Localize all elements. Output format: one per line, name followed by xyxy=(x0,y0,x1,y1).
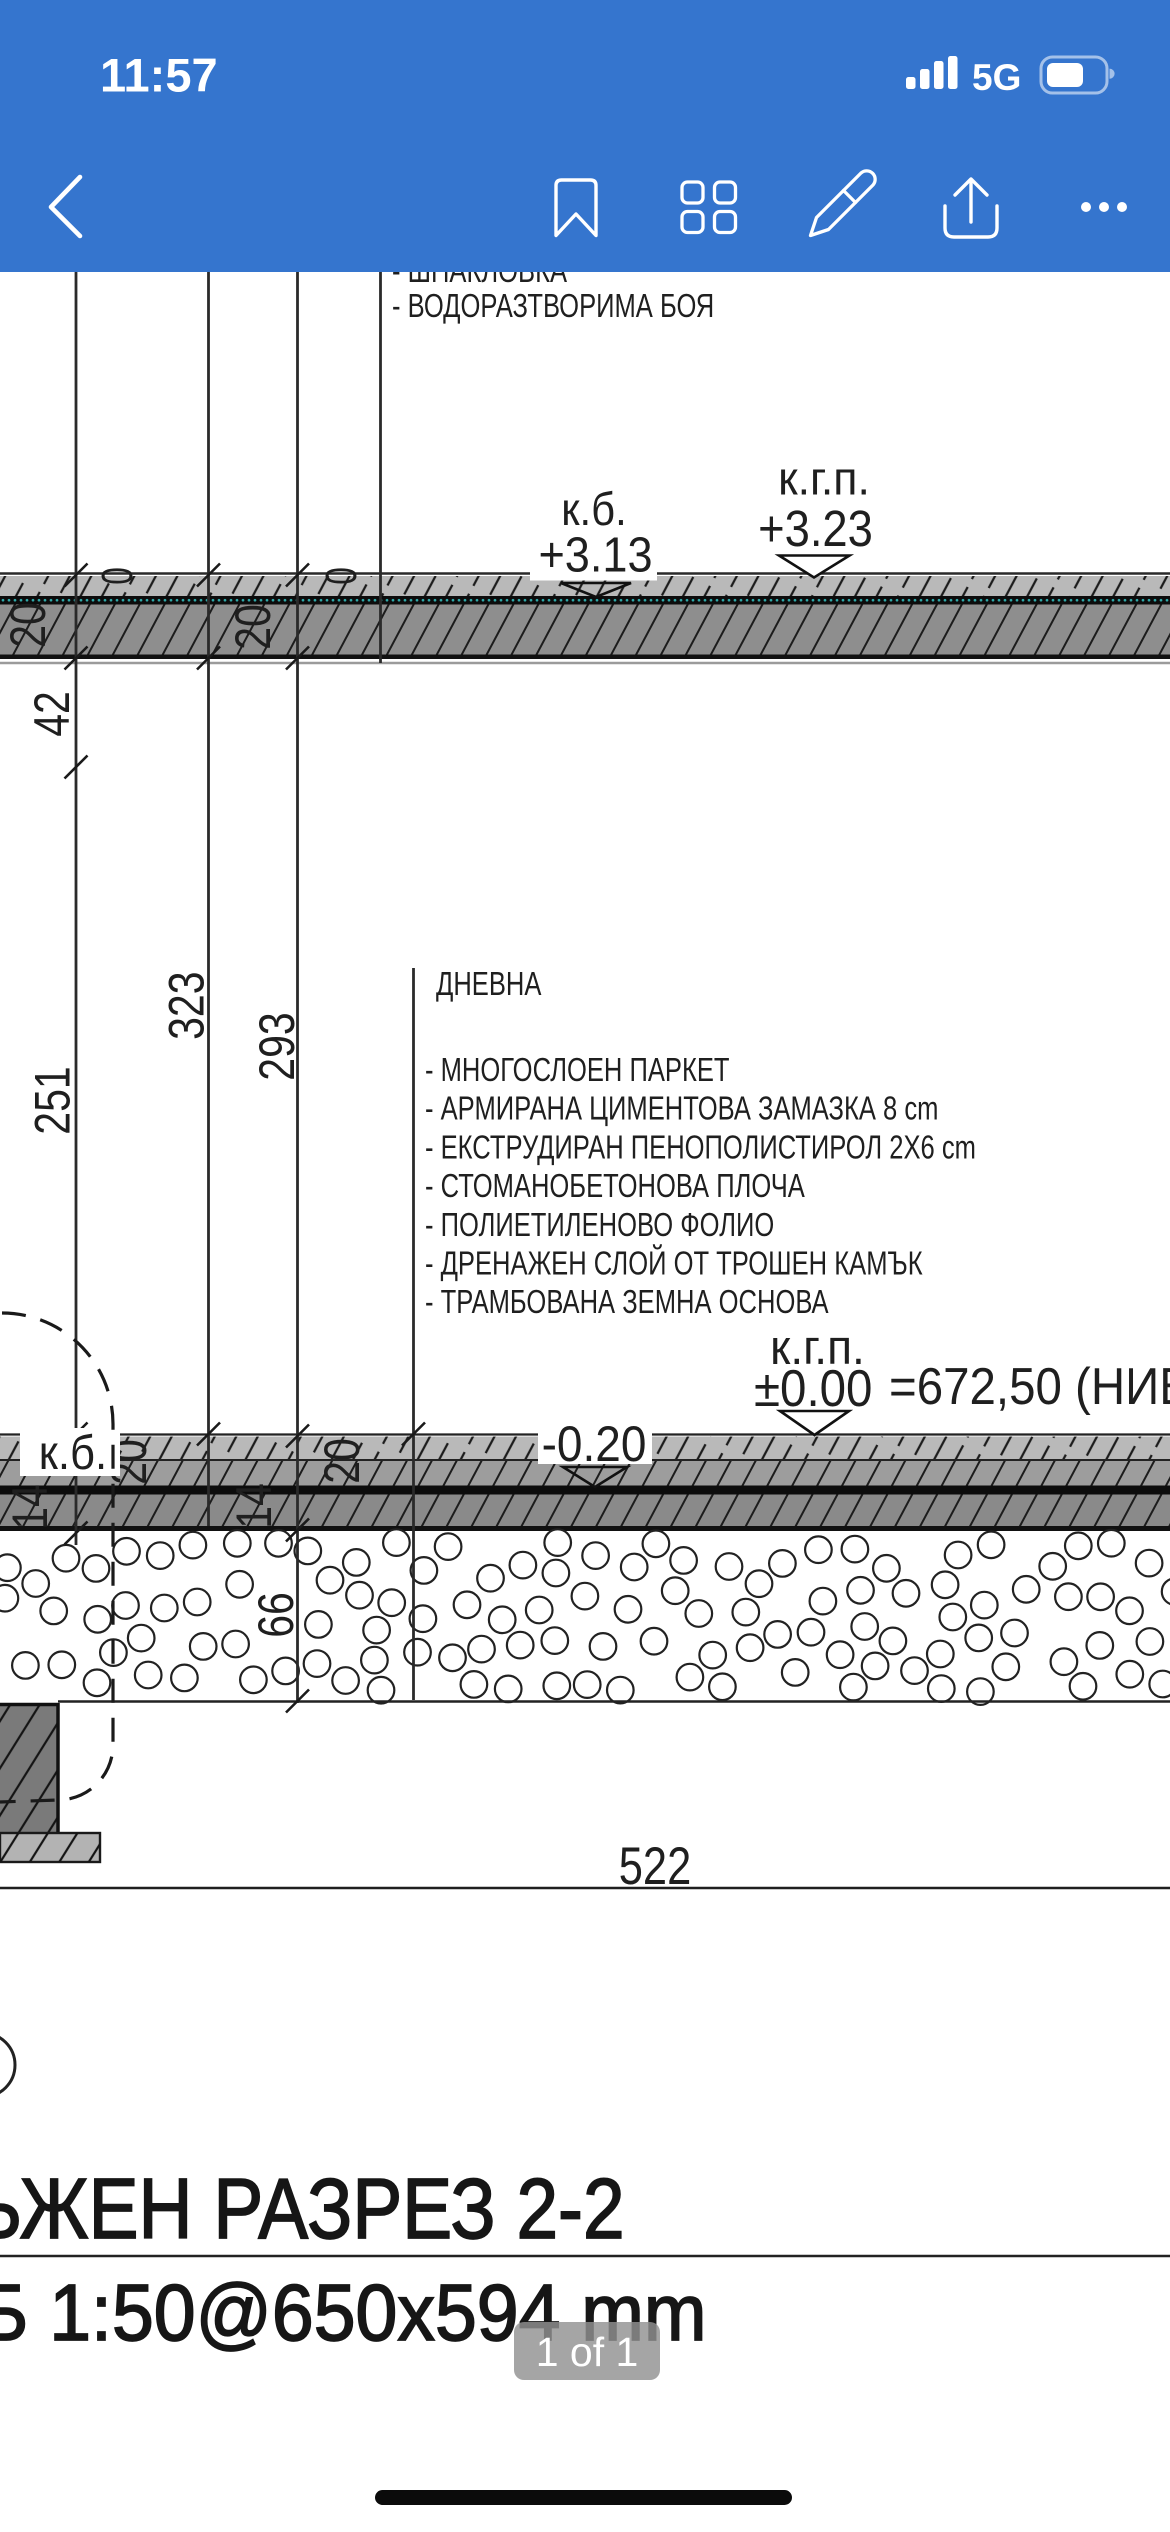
svg-text:0: 0 xyxy=(93,567,142,585)
svg-text:66: 66 xyxy=(248,1592,304,1638)
svg-text:±0.00: ±0.00 xyxy=(754,1359,872,1417)
svg-text:20: 20 xyxy=(0,602,56,648)
svg-text:к.г.п.: к.г.п. xyxy=(778,452,870,504)
svg-text:- ЕКСТРУДИРАН ПЕНОПОЛИСТИРОЛ 2: - ЕКСТРУДИРАН ПЕНОПОЛИСТИРОЛ 2X6 cm xyxy=(425,1129,976,1166)
svg-text:20: 20 xyxy=(225,604,281,650)
svg-text:- АРМИРАНА ЦИМЕНТОВА ЗАМАЗКА 8: - АРМИРАНА ЦИМЕНТОВА ЗАМАЗКА 8 cm xyxy=(425,1091,938,1128)
svg-text:+3.23: +3.23 xyxy=(758,501,873,558)
svg-text:- ШПАКЛОВКА: - ШПАКЛОВКА xyxy=(392,253,567,290)
svg-text:+3.13: +3.13 xyxy=(538,527,652,582)
svg-text:323: 323 xyxy=(159,971,215,1039)
svg-text:- СТОМАНОБЕТОНОВА ПЛОЧА: - СТОМАНОБЕТОНОВА ПЛОЧА xyxy=(425,1168,805,1205)
svg-text:- ПОЛИЕТИЛЕНОВО ФОЛИО: - ПОЛИЕТИЛЕНОВО ФОЛИО xyxy=(425,1207,774,1244)
svg-text:=672,50 (НИВО: =672,50 (НИВО xyxy=(889,1357,1170,1415)
svg-text:0: 0 xyxy=(317,567,366,585)
svg-text:251: 251 xyxy=(25,1066,81,1134)
svg-text:-0.20: -0.20 xyxy=(542,1417,647,1472)
svg-text:- ТРАМБОВАНА ЗЕМНА ОСНОВА: - ТРАМБОВАНА ЗЕМНА ОСНОВА xyxy=(425,1284,829,1321)
svg-text:к.б.: к.б. xyxy=(39,1425,107,1479)
svg-text:42: 42 xyxy=(24,691,80,737)
svg-text:1 of 1: 1 of 1 xyxy=(536,2329,639,2375)
svg-text:20: 20 xyxy=(314,1438,370,1484)
svg-text:522: 522 xyxy=(619,1837,691,1896)
svg-text:- ВОДОРАЗТВОРИМА БОЯ: - ВОДОРАЗТВОРИМА БОЯ xyxy=(392,288,714,325)
svg-text:- ДРЕНАЖЕН СЛОЙ ОТ ТРОШЕН КАМЪ: - ДРЕНАЖЕН СЛОЙ ОТ ТРОШЕН КАМЪК xyxy=(425,1244,923,1282)
svg-text:293: 293 xyxy=(249,1012,305,1080)
svg-text:ЬЖЕН РАЗРЕЗ 2-2: ЬЖЕН РАЗРЕЗ 2-2 xyxy=(0,2162,625,2256)
svg-text:11:57: 11:57 xyxy=(100,49,218,102)
svg-text:- МНОГОСЛОЕН ПАРКЕТ: - МНОГОСЛОЕН ПАРКЕТ xyxy=(425,1052,730,1089)
svg-text:5G: 5G xyxy=(972,57,1021,98)
svg-text:14: 14 xyxy=(2,1484,58,1530)
svg-text:ДНЕВНА: ДНЕВНА xyxy=(436,966,542,1003)
svg-text:14: 14 xyxy=(226,1483,282,1529)
